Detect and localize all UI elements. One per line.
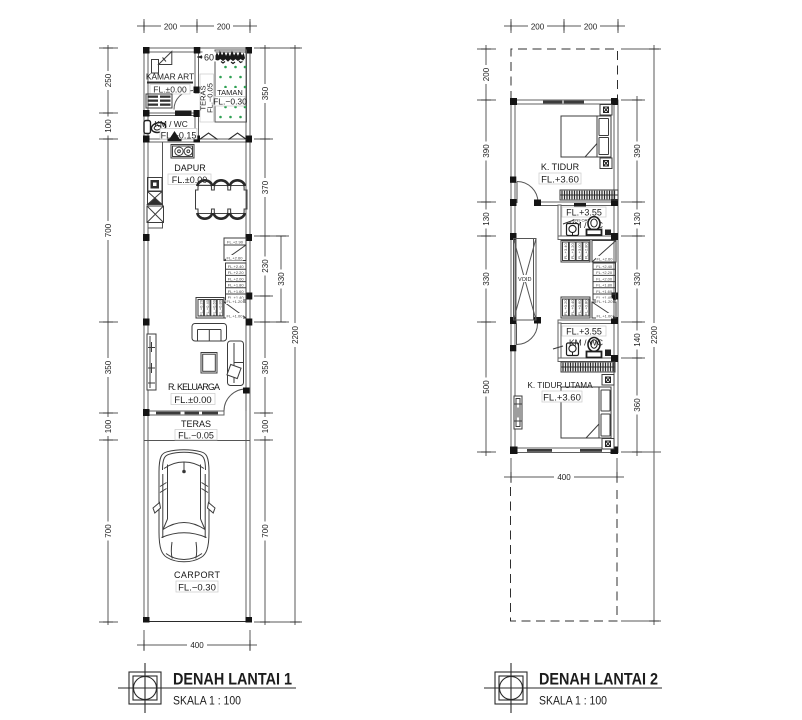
- svg-text:FL.+0.60: FL.+0.60: [577, 299, 582, 316]
- svg-text:FL.±0.00: FL.±0.00: [174, 395, 211, 406]
- svg-text:FL.+3.60: FL.+3.60: [541, 175, 579, 186]
- svg-text:VOID: VOID: [518, 277, 531, 283]
- svg-text:2200: 2200: [650, 326, 659, 344]
- svg-text:700: 700: [104, 524, 113, 538]
- svg-text:FL.+1.80: FL.+1.80: [596, 283, 613, 288]
- svg-text:350: 350: [261, 360, 270, 374]
- svg-text:350: 350: [261, 86, 270, 100]
- svg-text:FL.+0.80: FL.+0.80: [584, 299, 589, 316]
- svg-text:FL.+1.00: FL.+1.00: [597, 314, 614, 319]
- svg-text:FL.−0.30: FL.−0.30: [213, 97, 247, 107]
- svg-text:200: 200: [164, 23, 178, 32]
- svg-text:330: 330: [633, 272, 642, 286]
- svg-text:FL.+1.20: FL.+1.20: [227, 299, 244, 304]
- svg-text:FL.+1.00: FL.+1.00: [227, 314, 244, 319]
- svg-text:FL.+2.40: FL.+2.40: [228, 264, 245, 269]
- svg-text:330: 330: [277, 272, 286, 286]
- svg-text:FL.+3.60: FL.+3.60: [543, 393, 581, 404]
- svg-text:500: 500: [482, 380, 491, 394]
- svg-text:FL.+0.40: FL.+0.40: [570, 299, 575, 316]
- svg-text:370: 370: [261, 180, 270, 194]
- svg-text:KM / WC: KM / WC: [154, 119, 188, 129]
- svg-text:100: 100: [104, 119, 113, 133]
- svg-text:700: 700: [104, 223, 113, 237]
- svg-text:FL.±0.00: FL.±0.00: [153, 85, 187, 95]
- svg-text:200: 200: [482, 67, 491, 81]
- svg-text:200: 200: [217, 23, 231, 32]
- svg-text:CARPORT: CARPORT: [174, 570, 221, 580]
- svg-text:SKALA 1 : 100: SKALA 1 : 100: [539, 696, 607, 708]
- svg-text:100: 100: [261, 419, 270, 433]
- svg-text:DENAH LANTAI 1: DENAH LANTAI 1: [173, 671, 292, 689]
- svg-text:FL.+0.20: FL.+0.20: [199, 299, 204, 316]
- svg-text:FL.−0.30: FL.−0.30: [178, 583, 216, 594]
- svg-text:FL.+0.20: FL.+0.20: [563, 299, 568, 316]
- svg-text:K. TIDUR: K. TIDUR: [541, 162, 580, 172]
- svg-text:FL.+3.40: FL.+3.40: [563, 242, 568, 259]
- svg-text:TERAS: TERAS: [181, 419, 211, 429]
- svg-text:SKALA 1 : 100: SKALA 1 : 100: [173, 696, 241, 708]
- svg-text:FL.+3.55: FL.+3.55: [566, 208, 602, 218]
- svg-text:R. KELUARGA: R. KELUARGA: [168, 382, 220, 392]
- svg-text:FL.+3.00: FL.+3.00: [577, 242, 582, 259]
- svg-text:200: 200: [584, 23, 598, 32]
- svg-text:FL.−0.05: FL.−0.05: [178, 431, 214, 441]
- svg-text:FL.+2.60: FL.+2.60: [227, 256, 244, 261]
- svg-text:FL.+3.20: FL.+3.20: [570, 242, 575, 259]
- svg-text:FL.+2.80: FL.+2.80: [584, 242, 589, 259]
- svg-text:FL.+1.80: FL.+1.80: [228, 283, 245, 288]
- svg-text:FL.+2.90: FL.+2.90: [227, 240, 244, 245]
- svg-text:200: 200: [531, 23, 545, 32]
- svg-text:FL.+0.80: FL.+0.80: [218, 299, 223, 316]
- svg-text:FL.+1.60: FL.+1.60: [596, 289, 613, 294]
- svg-text:DENAH LANTAI 2: DENAH LANTAI 2: [539, 671, 658, 689]
- svg-text:360: 360: [633, 398, 642, 412]
- svg-text:130: 130: [633, 212, 642, 226]
- svg-text:FL.+2.00: FL.+2.00: [596, 276, 613, 281]
- svg-text:60: 60: [204, 53, 214, 63]
- svg-text:330: 330: [482, 272, 491, 286]
- svg-text:400: 400: [557, 473, 571, 482]
- svg-text:DAPUR: DAPUR: [174, 163, 206, 173]
- svg-text:700: 700: [261, 524, 270, 538]
- svg-text:140: 140: [633, 333, 642, 347]
- svg-text:FL.+2.20: FL.+2.20: [596, 270, 613, 275]
- svg-text:FL.+2.20: FL.+2.20: [228, 270, 245, 275]
- svg-text:FL.+2.00: FL.+2.00: [228, 276, 245, 281]
- svg-text:100: 100: [104, 419, 113, 433]
- svg-text:KM / WC: KM / WC: [569, 338, 603, 348]
- svg-text:250: 250: [104, 73, 113, 87]
- svg-text:FL.+3.55: FL.+3.55: [566, 327, 602, 337]
- svg-text:350: 350: [104, 360, 113, 374]
- svg-text:130: 130: [482, 212, 491, 226]
- svg-text:FL.+0.60: FL.+0.60: [211, 299, 216, 316]
- svg-text:390: 390: [482, 144, 491, 158]
- svg-text:KAMAR ART: KAMAR ART: [146, 72, 194, 82]
- svg-text:FL.+2.60: FL.+2.60: [597, 257, 614, 262]
- svg-text:FL.+1.60: FL.+1.60: [228, 289, 245, 294]
- svg-text:FL.−0.15: FL.−0.15: [161, 131, 197, 141]
- svg-text:FL.+2.40: FL.+2.40: [596, 264, 613, 269]
- svg-text:230: 230: [261, 259, 270, 273]
- svg-text:K. TIDUR UTAMA: K. TIDUR UTAMA: [527, 381, 593, 390]
- svg-text:FL.+0.40: FL.+0.40: [205, 299, 210, 316]
- svg-text:2200: 2200: [291, 326, 300, 344]
- svg-text:400: 400: [190, 641, 204, 650]
- svg-text:390: 390: [633, 144, 642, 158]
- svg-text:FL.+1.20: FL.+1.20: [597, 299, 614, 304]
